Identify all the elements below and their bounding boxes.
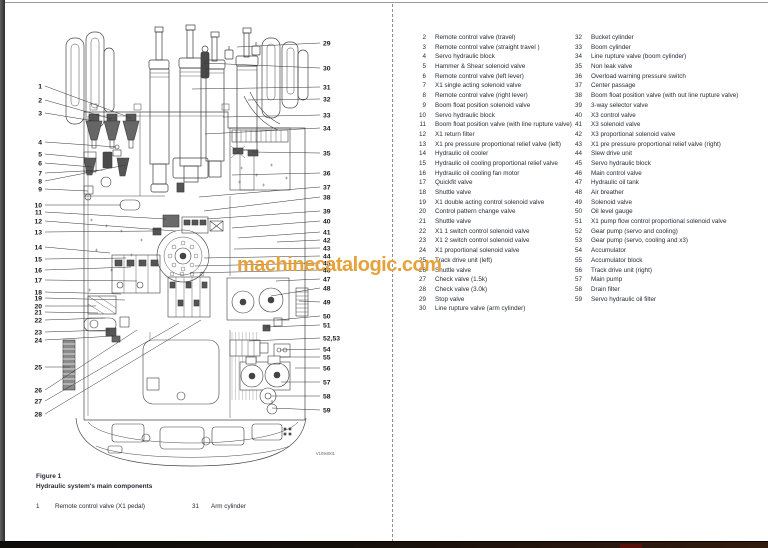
callout-number: 35 bbox=[323, 150, 331, 157]
callout-number: 19 bbox=[34, 295, 42, 302]
part-label: 3-way selector valve bbox=[591, 102, 648, 109]
callout-number: 55 bbox=[323, 354, 331, 361]
callout-leader-line bbox=[199, 187, 320, 197]
footnote-number-1: 1 bbox=[36, 503, 40, 510]
part-number: 7 bbox=[410, 82, 426, 89]
part-label: Servo hydraulic block bbox=[435, 53, 495, 60]
part-number: 15 bbox=[410, 160, 426, 167]
part-label: X1 1 switch control solenoid valve bbox=[435, 228, 530, 235]
figure-caption: Figure 1 Hydraulic system's main compone… bbox=[36, 472, 152, 492]
part-label: X1 pump flow control proportional soleno… bbox=[591, 218, 726, 225]
parts-list-row: 4Servo hydraulic block bbox=[410, 53, 590, 63]
part-label: Hammer & Shear solenoid valve bbox=[435, 63, 525, 70]
part-number: 12 bbox=[410, 131, 426, 138]
figure-code: V1094001 bbox=[316, 451, 336, 456]
center-manifold-and-slew bbox=[153, 215, 223, 317]
part-number: 55 bbox=[566, 257, 582, 264]
callout-number: 57 bbox=[323, 379, 331, 386]
callout-leader-line bbox=[45, 100, 112, 119]
parts-list-row: 53Gear pump (servo, cooling and x3) bbox=[566, 237, 766, 247]
part-number: 28 bbox=[410, 286, 426, 293]
part-number: 23 bbox=[410, 237, 426, 244]
part-number: 3 bbox=[410, 44, 426, 51]
callout-number: 42 bbox=[323, 237, 331, 244]
part-label: Hydraulic oil tank bbox=[591, 179, 639, 186]
part-label: Boom float position valve (with line rup… bbox=[435, 121, 572, 128]
callout-number: 2 bbox=[38, 97, 42, 104]
part-label: Main pump bbox=[591, 276, 622, 283]
parts-list-row: 34Line rupture valve (boom cylinder) bbox=[566, 53, 766, 63]
part-label: Boom float position solenoid valve bbox=[435, 102, 530, 109]
callout-leader-line bbox=[45, 231, 153, 232]
parts-list-row: 11Boom float position valve (with line r… bbox=[410, 121, 590, 131]
callout-leader-line bbox=[204, 197, 320, 211]
callout-leader-line bbox=[234, 248, 320, 249]
callout-number: 51 bbox=[323, 322, 331, 329]
part-number: 56 bbox=[566, 267, 582, 274]
parts-list-row: 54Accumulator bbox=[566, 247, 766, 257]
part-number: 16 bbox=[410, 170, 426, 177]
part-label: X3 control valve bbox=[591, 112, 636, 119]
callout-number: 21 bbox=[34, 309, 42, 316]
callout-leader-line bbox=[272, 408, 320, 410]
callout-number: 13 bbox=[34, 229, 42, 236]
part-number: 34 bbox=[566, 53, 582, 60]
callout-number: 14 bbox=[34, 244, 42, 251]
part-label: Check valve (1.5k) bbox=[435, 276, 487, 283]
callout-number: 56 bbox=[323, 365, 331, 372]
footnote-label-31: Arm cylinder bbox=[211, 503, 246, 510]
figure-title: Hydraulic system's main components bbox=[36, 482, 152, 492]
part-number: 19 bbox=[410, 199, 426, 206]
part-number: 18 bbox=[410, 189, 426, 196]
parts-list-row: 2Remote control valve (travel) bbox=[410, 34, 590, 44]
callout-number: 52,53 bbox=[323, 335, 340, 342]
callout-leader-line bbox=[45, 113, 94, 121]
part-label: Gear pump (servo, cooling and x3) bbox=[591, 237, 688, 244]
parts-list-row: 47Hydraulic oil tank bbox=[566, 179, 766, 189]
part-number: 43 bbox=[566, 141, 582, 148]
part-label: Solenoid valve bbox=[591, 199, 632, 206]
parts-list-row: 38Boom float position valve (with out li… bbox=[566, 92, 766, 102]
parts-list-row: 10Servo hydraulic block bbox=[410, 112, 590, 122]
callout-leader-line bbox=[277, 316, 320, 320]
callout-number: 43 bbox=[323, 245, 331, 252]
part-label: X3 proportional solenoid valve bbox=[591, 131, 675, 138]
part-label: X1 proportional solenoid valve bbox=[435, 247, 519, 254]
parts-list-row: 6Remote control valve (left lever) bbox=[410, 73, 590, 83]
taskbar-accent-chip bbox=[620, 544, 642, 548]
parts-list-row: 18Shuttle valve bbox=[410, 189, 590, 199]
callout-number: 16 bbox=[34, 267, 42, 274]
part-label: Boom cylinder bbox=[591, 44, 631, 51]
callout-leader-line bbox=[45, 86, 131, 118]
callout-leader-line bbox=[248, 99, 320, 100]
part-number: 22 bbox=[410, 228, 426, 235]
part-label: Non leak valve bbox=[591, 63, 632, 70]
part-number: 14 bbox=[410, 150, 426, 157]
left-valve-bank bbox=[63, 255, 160, 390]
part-label: Center passage bbox=[591, 82, 635, 89]
part-number: 59 bbox=[566, 296, 582, 303]
parts-list-row: 27Check valve (1.5k) bbox=[410, 276, 590, 286]
part-label: Remote control valve (left lever) bbox=[435, 73, 524, 80]
callout-leader-line bbox=[238, 232, 320, 238]
callout-number: 37 bbox=[323, 184, 331, 191]
parts-list-row: 19X1 double acting control solenoid valv… bbox=[410, 199, 590, 209]
part-label: Oil level gauge bbox=[591, 208, 633, 215]
callout-number: 6 bbox=[38, 160, 42, 167]
part-label: Hydraulic oil cooling fan motor bbox=[435, 170, 519, 177]
parts-list-row: 42X3 proportional solenoid valve bbox=[566, 131, 766, 141]
part-number: 21 bbox=[410, 218, 426, 225]
part-number: 50 bbox=[566, 208, 582, 215]
parts-list-row: 58Drain filter bbox=[566, 286, 766, 296]
callout-number: 49 bbox=[323, 299, 331, 306]
part-label: Servo hydraulic oil filter bbox=[591, 296, 656, 303]
callout-number: 31 bbox=[323, 84, 331, 91]
parts-list-row: 57Main pump bbox=[566, 276, 766, 286]
parts-list-row: 3Remote control valve (straight travel ) bbox=[410, 44, 590, 54]
callout-leader-line bbox=[45, 336, 114, 340]
part-number: 20 bbox=[410, 208, 426, 215]
callout-number: 59 bbox=[323, 407, 331, 414]
parts-list-row: 41X3 solenoid valve bbox=[566, 121, 766, 131]
callout-number: 10 bbox=[34, 202, 42, 209]
window-bottom-edge bbox=[0, 541, 768, 548]
part-number: 36 bbox=[566, 73, 582, 80]
part-label: Slew drive unit bbox=[591, 150, 632, 157]
part-label: X3 solenoid valve bbox=[591, 121, 640, 128]
callout-leader-line bbox=[192, 87, 320, 89]
part-number: 35 bbox=[566, 63, 582, 70]
part-number: 58 bbox=[566, 286, 582, 293]
part-label: Remote control valve (travel) bbox=[435, 34, 516, 41]
parts-list-row: 46Main control valve bbox=[566, 170, 766, 180]
manual-page-viewer: 1234567891011121314151617181920212223242… bbox=[0, 0, 768, 548]
callout-leader-line bbox=[45, 189, 88, 191]
part-number: 42 bbox=[566, 131, 582, 138]
part-label: X1 double acting control solenoid valve bbox=[435, 199, 544, 206]
parts-list-row: 56Track drive unit (right) bbox=[566, 267, 766, 277]
part-number: 5 bbox=[410, 63, 426, 70]
callout-number: 24 bbox=[34, 337, 42, 344]
part-label: Line rupture valve (arm cylinder) bbox=[435, 305, 525, 312]
part-label: Shuttle valve bbox=[435, 189, 471, 196]
part-label: Remote control valve (straight travel ) bbox=[435, 44, 540, 51]
part-label: Boom float position valve (with out line… bbox=[591, 92, 738, 99]
part-label: X1 single acting solenoid valve bbox=[435, 82, 521, 89]
part-label: Stop valve bbox=[435, 296, 464, 303]
footnote-number-31: 31 bbox=[192, 503, 199, 510]
part-label: Hydraulic oil cooler bbox=[435, 150, 488, 157]
part-label: Control pattern change valve bbox=[435, 208, 516, 215]
parts-list-row: 51X1 pump flow control proportional sole… bbox=[566, 218, 766, 228]
parts-list-row: 16Hydraulic oil cooling fan motor bbox=[410, 170, 590, 180]
parts-list-row: 14Hydraulic oil cooler bbox=[410, 150, 590, 160]
parts-list-row: 48Air breather bbox=[566, 189, 766, 199]
callout-leader-line bbox=[45, 142, 116, 147]
part-number: 57 bbox=[566, 276, 582, 283]
parts-list-right-column: 32Bucket cylinder33Boom cylinder34Line r… bbox=[566, 34, 766, 305]
callout-number: 39 bbox=[323, 208, 331, 215]
part-number: 4 bbox=[410, 53, 426, 60]
callout-leader-line bbox=[299, 301, 320, 302]
callout-leader-line bbox=[207, 211, 320, 219]
callout-leader-line bbox=[271, 288, 320, 296]
callout-number: 32 bbox=[323, 96, 331, 103]
callout-layer: 1234567891011121314151617181920212223242… bbox=[34, 40, 340, 418]
callout-leader-line bbox=[223, 115, 320, 117]
callout-number: 47 bbox=[323, 276, 331, 283]
part-label: Track drive unit (left) bbox=[435, 257, 492, 264]
callout-leader-line bbox=[45, 292, 121, 294]
callout-number: 26 bbox=[34, 387, 42, 394]
callout-number: 40 bbox=[323, 218, 331, 225]
parts-list-row: 8Remote control valve (right lever) bbox=[410, 92, 590, 102]
parts-list-row: 15Hydraulic oil cooling proportional rel… bbox=[410, 160, 590, 170]
figure-label: Figure 1 bbox=[36, 472, 152, 482]
part-label: Track drive unit (right) bbox=[591, 267, 652, 274]
callout-number: 34 bbox=[323, 125, 331, 132]
parts-list-row: 36Overload warning pressure switch bbox=[566, 73, 766, 83]
callout-leader-line bbox=[205, 128, 320, 134]
callout-number: 58 bbox=[323, 393, 331, 400]
part-number: 39 bbox=[566, 102, 582, 109]
watermark-text: machinecatalogic.com bbox=[237, 254, 442, 277]
parts-list-row: 32Bucket cylinder bbox=[566, 34, 766, 44]
parts-list-row: 59Servo hydraulic oil filter bbox=[566, 296, 766, 306]
parts-list-row: 44Slew drive unit bbox=[566, 150, 766, 160]
part-label: Servo hydraulic block bbox=[435, 112, 495, 119]
part-number: 48 bbox=[566, 189, 582, 196]
callout-number: 50 bbox=[323, 313, 331, 320]
part-label: Shuttle valve bbox=[435, 218, 471, 225]
callout-leader-line bbox=[45, 298, 125, 300]
parts-list-row: 28Check valve (3.0k) bbox=[410, 286, 590, 296]
part-label: Air breather bbox=[591, 189, 624, 196]
part-label: Bucket cylinder bbox=[591, 34, 634, 41]
part-number: 41 bbox=[566, 121, 582, 128]
callout-number: 38 bbox=[323, 194, 331, 201]
callout-number: 36 bbox=[323, 170, 331, 177]
callout-number: 17 bbox=[34, 277, 42, 284]
parts-list-row: 17Quickfit valve bbox=[410, 179, 590, 189]
part-number: 8 bbox=[410, 92, 426, 99]
part-number: 32 bbox=[566, 34, 582, 41]
callout-number: 4 bbox=[38, 139, 42, 146]
parts-list-row: 12X1 return filter bbox=[410, 131, 590, 141]
part-label: X1 2 switch control solenoid valve bbox=[435, 237, 530, 244]
callout-leader-line bbox=[45, 154, 87, 158]
part-number: 40 bbox=[566, 112, 582, 119]
hydraulic-cylinders bbox=[149, 25, 280, 192]
parts-list-row: 35Non leak valve bbox=[566, 63, 766, 73]
part-label: Servo hydraulic block bbox=[591, 160, 651, 167]
part-label: Main control valve bbox=[591, 170, 642, 177]
callout-number: 48 bbox=[323, 285, 331, 292]
callout-leader-line bbox=[45, 221, 176, 231]
part-number: 51 bbox=[566, 218, 582, 225]
part-number: 13 bbox=[410, 141, 426, 148]
part-number: 38 bbox=[566, 92, 582, 99]
callout-number: 28 bbox=[34, 411, 42, 418]
part-number: 52 bbox=[566, 228, 582, 235]
callout-number: 22 bbox=[34, 317, 42, 324]
part-number: 2 bbox=[410, 34, 426, 41]
callout-leader-line bbox=[45, 280, 137, 281]
part-number: 45 bbox=[566, 160, 582, 167]
parts-list-row: 23X1 2 switch control solenoid valve bbox=[410, 237, 590, 247]
part-label: Hydraulic oil cooling proportional relie… bbox=[435, 160, 558, 167]
callout-leader-line bbox=[237, 43, 320, 47]
callout-number: 33 bbox=[323, 112, 331, 119]
parts-list-row: 7X1 single acting solenoid valve bbox=[410, 82, 590, 92]
callout-number: 30 bbox=[323, 65, 331, 72]
callout-number: 27 bbox=[34, 398, 42, 405]
part-number: 10 bbox=[410, 112, 426, 119]
callout-leader-line bbox=[232, 221, 320, 228]
callout-number: 8 bbox=[38, 178, 42, 185]
footnote-label-1: Remote control valve (X1 pedal) bbox=[55, 503, 145, 510]
part-number: 30 bbox=[410, 305, 426, 312]
callout-leader-line bbox=[45, 312, 98, 313]
parts-list-row: 20Control pattern change valve bbox=[410, 208, 590, 218]
callout-number: 11 bbox=[35, 209, 42, 216]
part-number: 49 bbox=[566, 199, 582, 206]
parts-list-row: 55Accumulator block bbox=[566, 257, 766, 267]
callout-leader-line bbox=[45, 258, 126, 259]
callout-leader-line bbox=[276, 279, 320, 281]
parts-list-row: 13X1 pre pressure proportional relief va… bbox=[410, 141, 590, 151]
parts-list-row: 40X3 control valve bbox=[566, 112, 766, 122]
part-number: 29 bbox=[410, 296, 426, 303]
part-label: Accumulator bbox=[591, 247, 626, 254]
part-label: Gear pump (servo and cooling) bbox=[591, 228, 678, 235]
part-number: 44 bbox=[566, 150, 582, 157]
part-label: Quickfit valve bbox=[435, 179, 472, 186]
callout-number: 29 bbox=[323, 40, 331, 47]
parts-list-row: 29Stop valve bbox=[410, 296, 590, 306]
callout-number: 54 bbox=[323, 346, 331, 353]
callout-number: 12 bbox=[34, 218, 42, 225]
callout-leader-line bbox=[277, 240, 320, 242]
part-number: 37 bbox=[566, 82, 582, 89]
callout-leader-line bbox=[45, 247, 110, 253]
part-number: 9 bbox=[410, 102, 426, 109]
part-number: 11 bbox=[410, 121, 426, 128]
part-number: 33 bbox=[566, 44, 582, 51]
part-label: Remote control valve (right lever) bbox=[435, 92, 528, 99]
part-label: Line rupture valve (boom cylinder) bbox=[591, 53, 686, 60]
part-label: Overload warning pressure switch bbox=[591, 73, 686, 80]
window-top-edge bbox=[5, 2, 768, 3]
callout-leader-line bbox=[45, 212, 166, 219]
part-number: 46 bbox=[566, 170, 582, 177]
part-number: 27 bbox=[410, 276, 426, 283]
parts-list-row: 30Line rupture valve (arm cylinder) bbox=[410, 305, 590, 315]
part-label: X1 pre pressure proportional relief valv… bbox=[435, 141, 561, 148]
parts-list-row: 37Center passage bbox=[566, 82, 766, 92]
parts-list-row: 43X1 pre pressure proportional relief va… bbox=[566, 141, 766, 151]
parts-list-row: 49Solenoid valve bbox=[566, 199, 766, 209]
callout-leader-line bbox=[249, 338, 320, 341]
parts-list-row: 50Oil level gauge bbox=[566, 208, 766, 218]
parts-list-row: 52Gear pump (servo and cooling) bbox=[566, 228, 766, 238]
callout-number: 23 bbox=[34, 329, 42, 336]
parts-list-row: 21Shuttle valve bbox=[410, 218, 590, 228]
parts-list-row: 45Servo hydraulic block bbox=[566, 160, 766, 170]
callout-number: 7 bbox=[38, 170, 42, 177]
part-label: X1 pre pressure proportional relief valv… bbox=[591, 141, 721, 148]
callout-leader-line bbox=[252, 152, 320, 153]
part-number: 53 bbox=[566, 237, 582, 244]
callout-number: 9 bbox=[38, 186, 42, 193]
callout-number: 3 bbox=[38, 110, 42, 117]
part-number: 47 bbox=[566, 179, 582, 186]
part-label: Drain filter bbox=[591, 286, 620, 293]
callout-leader-line bbox=[232, 173, 320, 175]
part-number: 6 bbox=[410, 73, 426, 80]
part-label: X1 return filter bbox=[435, 131, 475, 138]
callout-number: 25 bbox=[34, 364, 42, 371]
parts-list-row: 393-way selector valve bbox=[566, 102, 766, 112]
parts-list-row: 22X1 1 switch control solenoid valve bbox=[410, 228, 590, 238]
parts-list-row: 5Hammer & Shear solenoid valve bbox=[410, 63, 590, 73]
callout-number: 15 bbox=[34, 256, 42, 263]
callout-number: 41 bbox=[323, 229, 331, 236]
part-label: Accumulator block bbox=[591, 257, 642, 264]
window-left-edge bbox=[0, 0, 5, 548]
part-number: 17 bbox=[410, 179, 426, 186]
callout-number: 5 bbox=[38, 151, 42, 158]
part-label: Check valve (3.0k) bbox=[435, 286, 487, 293]
callout-number: 1 bbox=[38, 83, 42, 90]
part-number: 54 bbox=[566, 247, 582, 254]
parts-list-row: 33Boom cylinder bbox=[566, 44, 766, 54]
callout-leader-line bbox=[45, 318, 105, 320]
parts-list-row: 9Boom float position solenoid valve bbox=[410, 102, 590, 112]
